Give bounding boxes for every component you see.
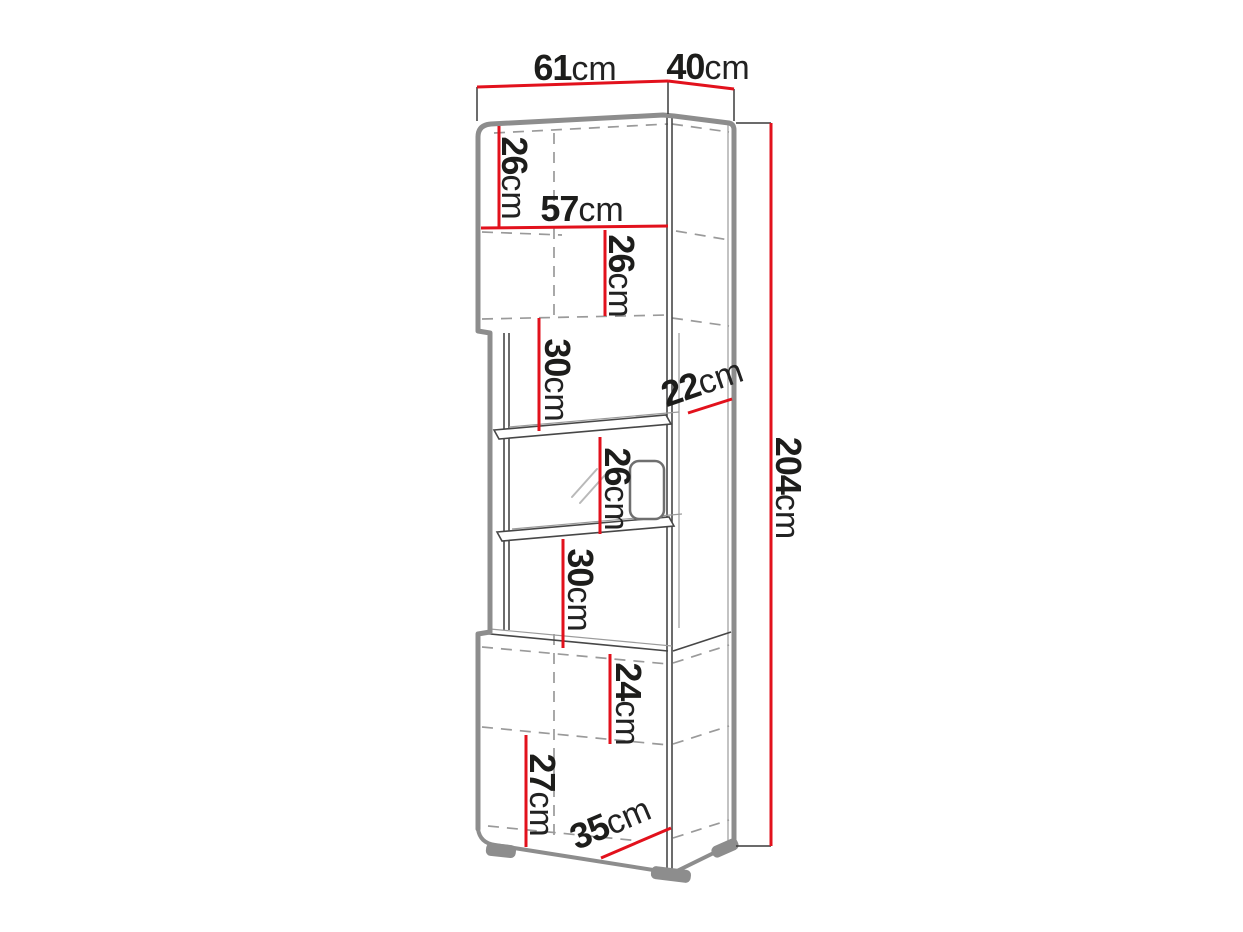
upper-bottom-edge <box>482 315 668 319</box>
upper-bottom-right-edge <box>672 318 729 326</box>
dim-label-between-shelves: 26cm <box>597 447 638 530</box>
foot-front-left <box>485 842 516 858</box>
dim-label-upper-lower-height: 26cm <box>601 234 642 317</box>
cabinet-diagram-svg: 61cm 40cm 26cm 57cm 26cm 30cm 22cm 26cm … <box>0 0 1243 932</box>
dim-label-lower-door-height: 27cm <box>522 753 563 836</box>
dim-label-gap-above-shelf: 30cm <box>537 338 578 421</box>
foot-back-right <box>710 837 740 859</box>
lower-top-front-edge <box>480 633 668 651</box>
dim-label-lower-inner-height: 24cm <box>608 662 649 745</box>
dim-label-top-depth: 40cm <box>666 46 749 87</box>
shelf-lower <box>497 517 674 541</box>
dim-label-total-height: 204cm <box>768 437 809 539</box>
upper-top-back-edge <box>494 124 668 133</box>
dim-label-upper-inner-width: 57cm <box>540 188 623 229</box>
dim-label-gap-below-shelf: 30cm <box>560 548 601 631</box>
dim-label-upper-door-height: 26cm <box>494 136 535 219</box>
furniture-dimension-diagram: 61cm 40cm 26cm 57cm 26cm 30cm 22cm 26cm … <box>0 0 1243 932</box>
upper-door-split-edge <box>482 232 562 235</box>
lower-shelf-right <box>673 726 729 744</box>
upper-door-split-right <box>676 231 729 240</box>
upper-top-right-edge <box>672 124 729 132</box>
glass-shine-line-1 <box>572 469 597 497</box>
lower-bottom-inner-right <box>673 820 729 838</box>
shelf-upper <box>494 415 671 439</box>
dim-label-base-depth: 35cm <box>564 787 657 857</box>
dim-label-top-width: 61cm <box>533 47 616 88</box>
lower-top-right-edge <box>673 632 731 651</box>
dimension-labels: 61cm 40cm 26cm 57cm 26cm 30cm 22cm 26cm … <box>494 46 809 858</box>
